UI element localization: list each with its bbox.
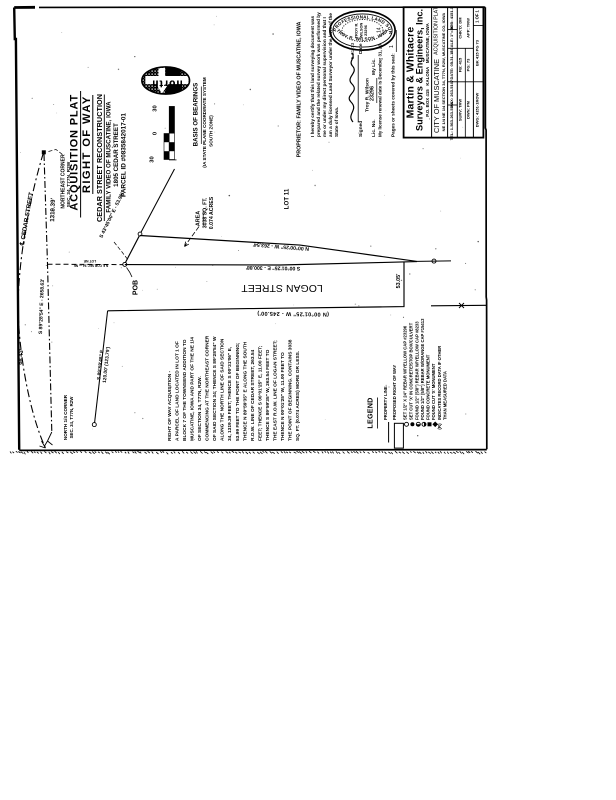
svg-text:S 00°01'25" E - 300.88': S 00°01'25" E - 300.88' [246, 264, 301, 271]
svg-text:34, 1319.39 FEET; THENCE S 00°: 34, 1319.39 FEET; THENCE S 00°31'06" E, [227, 346, 233, 441]
svg-text:BASIS OF BEARINGS: BASIS OF BEARINGS [193, 83, 200, 147]
svg-text:Signed: Signed [358, 121, 364, 137]
svg-text:DWN: PM: DWN: PM [466, 100, 471, 119]
svg-text:53.99 FEET TO THE POINT OF BEG: 53.99 FEET TO THE POINT OF BEGINNING; [235, 342, 241, 441]
svg-text:FB: 415: FB: 415 [458, 57, 463, 72]
svg-text:My Lic.: My Lic. [371, 58, 377, 75]
svg-text:R.O.W. LINE OF CEDAR STREET, 2: R.O.W. LINE OF CEDAR STREET, 263.54 [250, 350, 256, 441]
svg-text:POB: POB [133, 280, 140, 295]
svg-text:23296: 23296 [370, 86, 376, 101]
svg-text:Date: Date [358, 43, 364, 54]
svg-text:1805 CEDAR STREET: 1805 CEDAR STREET [113, 123, 120, 187]
svg-text:FOUND CONCRETE MONUMENT: FOUND CONCRETE MONUMENT [426, 354, 431, 420]
svg-text:APP: TRW: APP: TRW [466, 18, 471, 38]
svg-text:LOGAN STREET: LOGAN STREET [241, 282, 323, 293]
svg-text:53.05': 53.05' [396, 274, 402, 289]
svg-text:PROPERTY LINE: PROPERTY LINE [383, 386, 388, 420]
svg-text:My license renewal date is Dec: My license renewal date is December 31, … [378, 43, 383, 137]
svg-text:SEC. 34, T77N, R2W: SEC. 34, T77N, R2W [66, 161, 72, 207]
svg-text:Lic. No.: Lic. No. [371, 119, 377, 137]
svg-text:OF SECTION 34, T77N, R2W.: OF SECTION 34, T77N, R2W. [197, 376, 203, 441]
svg-text:THE POINT OF BEGINNING. CONTAI: THE POINT OF BEGINNING. CONTAINS 3038 [288, 339, 294, 441]
svg-text:30: 30 [150, 156, 156, 162]
svg-text:RIGHT OF WAY ACQUISITION -: RIGHT OF WAY ACQUISITION - [167, 370, 173, 441]
svg-text:SET CUT 'X' IN CONCRETE/STOP B: SET CUT 'X' IN CONCRETE/STOP BOX/CULVERT [408, 322, 413, 420]
svg-text:OF SAID SECTION 34; THENCE S 8: OF SAID SECTION 34; THENCE S 89°28'54" W [212, 336, 218, 441]
svg-text:SURV: TRW: SURV: TRW [458, 99, 463, 122]
svg-text:NORTHEAST CORNER: NORTHEAST CORNER [60, 154, 66, 209]
svg-text:PARCEL ID #0835842017-01: PARCEL ID #0835842017-01 [121, 113, 128, 197]
svg-text:LEGEND: LEGEND [365, 397, 374, 428]
svg-text:me or under my direct personal: me or under my direct personal supervisi… [322, 17, 327, 137]
svg-text:FAMILY VIDEO OF MUSCATINE, IOW: FAMILY VIDEO OF MUSCATINE, IOWA [105, 101, 112, 213]
svg-text:N.E.COR.SEC.34 — NE: N.E.COR.SEC.34 — NE [74, 264, 109, 268]
svg-text:23296: 23296 [363, 24, 368, 36]
svg-text:RIGHT OF WAY: RIGHT OF WAY [81, 95, 93, 193]
svg-text:(R): (R) [437, 423, 442, 430]
svg-text:3038 SQ. FT.: 3038 SQ. FT. [203, 197, 209, 228]
svg-text:ACQUISITION PLAT: ACQUISITION PLAT [434, 6, 440, 55]
svg-text:JOB: 4151.1: JOB: 4151.1 [449, 6, 454, 30]
svg-text:A PARCEL OF LAND LOCATED IN LO: A PARCEL OF LAND LOCATED IN LOT 1 OF [174, 341, 180, 441]
svg-text:FOUND 1/2" (5/8") REBAR W/ORAN: FOUND 1/2" (5/8") REBAR W/ORANGE CAP #15… [420, 318, 425, 420]
svg-text:State of Iowa.: State of Iowa. [334, 107, 339, 137]
svg-text:Pages or sheets covered by thi: Pages or sheets covered by this seal: [391, 53, 396, 137]
svg-text:FOUND 1/2" (5/8") REBAR W/YELL: FOUND 1/2" (5/8") REBAR W/YELLOW CAP #82… [414, 321, 419, 420]
svg-text:SOUTH ZONE): SOUTH ZONE) [208, 115, 213, 147]
svg-text:LOT 11: LOT 11 [284, 188, 291, 209]
svg-text:AREA: AREA [196, 211, 202, 226]
svg-text:I hereby certify that this lan: I hereby certify that this land surveyin… [310, 15, 315, 137]
svg-text:NE 1/4 NE 1/4 SECTION 34, T77N: NE 1/4 NE 1/4 SECTION 34, T77N, R2W, MUS… [441, 13, 446, 132]
svg-text:LOT NE: LOT NE [83, 259, 96, 263]
svg-text:prepared and the related surve: prepared and the related survey work was… [316, 12, 321, 137]
svg-text:BK 415 PG 73: BK 415 PG 73 [475, 39, 480, 66]
svg-text:PG: 73: PG: 73 [466, 58, 471, 71]
svg-text:THENCE N 00°01'25" W, 11.00 FE: THENCE N 00°01'25" W, 11.00 FEET TO [280, 352, 286, 441]
svg-text:DATE: 05-31-13: DATE: 05-31-13 [449, 50, 454, 80]
svg-text:THENCE S 89°59'35" W, 263.54 F: THENCE S 89°59'35" W, 263.54 FEET TO [265, 349, 271, 441]
svg-text:COMMENCING AT THE NORTHEAST CO: COMMENCING AT THE NORTHEAST CORNER [205, 335, 211, 441]
svg-text:30: 30 [153, 105, 159, 111]
svg-text:THAN MEASURED DATA: THAN MEASURED DATA [443, 371, 448, 420]
svg-text:SQ. FT. (0.074 ACRES) MORE OR: SQ. FT. (0.074 ACRES) MORE OR LESS. [295, 351, 301, 441]
svg-text:(IA STATE PLANE COORDINATE SYS: (IA STATE PLANE COORDINATE SYSTEM [202, 77, 207, 168]
svg-text:P.O. BOX 415 KALONA MUSCAT: P.O. BOX 415 KALONA MUSCATINE, IOWA [425, 22, 430, 116]
svg-text:1 OF 1: 1 OF 1 [475, 9, 480, 22]
svg-text:SET 1/2" X 24" REBAR W/YELLOW: SET 1/2" X 24" REBAR W/YELLOW CAP #23296 [403, 325, 408, 420]
svg-text:DWG: 4151-1ROW: DWG: 4151-1ROW [475, 93, 480, 128]
svg-text:PROPRIETOR: FAMILY VIDEO OF MU: PROPRIETOR: FAMILY VIDEO OF MUSCATINE, I… [296, 22, 302, 158]
svg-text:THENCE N 89°59'35" E ALONG THE: THENCE N 89°59'35" E ALONG THE SOUTH [242, 341, 248, 441]
svg-text:PROPOSED RIGHT OF WAY: PROPOSED RIGHT OF WAY [392, 365, 397, 420]
svg-text:ALONG THE NORTH LINE OF SAID S: ALONG THE NORTH LINE OF SAID SECTION [220, 338, 226, 441]
svg-text:0: 0 [153, 132, 159, 135]
svg-text:FEET; THENCE S 00°01'25" E, 11: FEET; THENCE S 00°01'25" E, 11.00 FEET; [257, 345, 263, 441]
svg-text:BLOCK 7 OF THE TOWNSEND ADDITI: BLOCK 7 OF THE TOWNSEND ADDITION TO [182, 339, 188, 441]
svg-text:north: north [151, 77, 183, 88]
svg-text:(N 00°01'25" W - 245.00'): (N 00°01'25" W - 245.00') [257, 310, 329, 317]
svg-text:SEC. 34, T77N, R2W: SEC. 34, T77N, R2W [69, 396, 74, 439]
svg-text:INDICATES RECORD DATA IF OTHER: INDICATES RECORD DATA IF OTHER [437, 346, 442, 420]
svg-text:CHK'D: DM: CHK'D: DM [458, 17, 463, 39]
svg-text:CEDAR STREET RECONSTRUCTION: CEDAR STREET RECONSTRUCTION [95, 94, 104, 222]
svg-text:MUSCATINE, IOWA AND PART OF TH: MUSCATINE, IOWA AND PART OF THE NE 1/4 [189, 337, 195, 441]
svg-text:5-31-13: 5-31-13 [350, 42, 356, 59]
svg-text:1: 1 [389, 45, 395, 48]
svg-text:0.074 ACRES: 0.074 ACRES [209, 196, 215, 229]
svg-text:CITY OF MUSCATINE: CITY OF MUSCATINE [432, 59, 441, 133]
svg-text:FAX: 263-5107: FAX: 263-5107 [449, 79, 454, 107]
svg-text:Surveyors & Engineers, Inc.: Surveyors & Engineers, Inc. [415, 9, 425, 131]
svg-text:FOUND CUT 'X' MONUMENT: FOUND CUT 'X' MONUMENT [431, 363, 436, 420]
svg-text:THE EAST R.O.W. LINE OF LOGAN: THE EAST R.O.W. LINE OF LOGAN STREET; [273, 340, 279, 441]
svg-text:NORTH 1/4 CORNER: NORTH 1/4 CORNER [63, 394, 68, 440]
svg-text:1319.39': 1319.39' [49, 197, 57, 222]
